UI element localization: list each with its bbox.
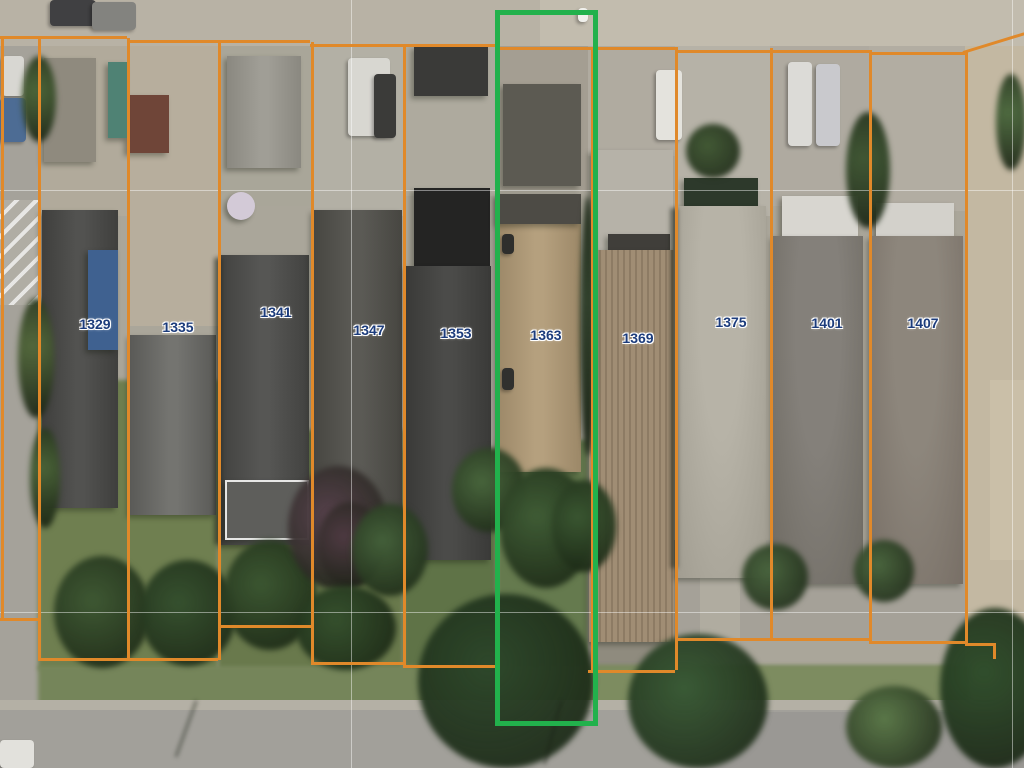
vehicle — [50, 0, 96, 26]
building-roof — [870, 236, 963, 584]
lot-label-1401: 1401 — [811, 315, 842, 331]
aerial-map[interactable]: 1329133513411347135313631369137514011407 — [0, 0, 1024, 768]
vehicle — [92, 2, 136, 30]
building-roof — [88, 250, 118, 350]
tree-canopy — [854, 540, 914, 602]
tree-canopy — [628, 634, 768, 768]
tree-canopy — [686, 124, 740, 178]
parcel-boundary-line — [965, 52, 968, 645]
lot-label-1335: 1335 — [162, 319, 193, 335]
tree-canopy — [846, 686, 942, 768]
highlighted-parcel-outline[interactable] — [495, 10, 598, 726]
parcel-boundary-line — [0, 36, 127, 39]
parcel-boundary-line — [311, 42, 314, 664]
parcel-boundary-line — [403, 665, 497, 668]
lot-label-1329: 1329 — [79, 316, 110, 332]
building-roof — [414, 46, 488, 96]
vehicle — [2, 56, 24, 96]
lot-label-1375: 1375 — [715, 314, 746, 330]
tree-canopy — [742, 544, 808, 610]
building-roof — [677, 206, 766, 578]
building-roof — [782, 196, 858, 238]
graticule-line — [1012, 0, 1013, 768]
vehicle — [656, 70, 682, 140]
parcel-boundary-line — [869, 50, 872, 642]
building-roof — [130, 335, 216, 515]
building-roof — [684, 178, 758, 208]
vehicle — [0, 740, 34, 768]
tree-canopy — [352, 504, 428, 596]
parcel-boundary-line — [127, 38, 130, 660]
building-roof — [227, 192, 255, 220]
parcel-boundary-line — [403, 44, 406, 667]
graticule-line — [351, 0, 352, 768]
tree-canopy — [846, 112, 890, 228]
building-roof — [773, 236, 863, 584]
lot-label-1369: 1369 — [622, 330, 653, 346]
parcel-boundary-line — [869, 52, 965, 55]
parcel-boundary-line — [38, 36, 41, 660]
parcel-boundary-line — [311, 662, 403, 665]
ground-patch — [128, 46, 218, 326]
tree-canopy — [18, 298, 54, 418]
parcel-boundary-line — [218, 625, 311, 628]
parcel-boundary-line — [675, 47, 678, 670]
building-roof — [227, 56, 301, 168]
tree-canopy — [996, 74, 1024, 170]
building-roof — [127, 95, 169, 153]
parcel-boundary-line — [770, 48, 773, 640]
parcel-boundary-line — [588, 670, 675, 673]
building-roof — [414, 188, 490, 266]
lot-label-1407: 1407 — [907, 315, 938, 331]
parcel-boundary-line — [993, 643, 996, 659]
ground-patch — [990, 380, 1024, 560]
vehicle — [816, 64, 840, 146]
vehicle — [374, 74, 396, 138]
lot-label-1363: 1363 — [530, 327, 561, 343]
parcel-boundary-line — [0, 618, 40, 621]
lot-label-1341: 1341 — [260, 304, 291, 320]
building-roof — [589, 250, 674, 642]
building-roof — [876, 203, 954, 239]
parcel-boundary-line — [965, 643, 995, 646]
lot-label-1347: 1347 — [353, 322, 384, 338]
parcel-boundary-line — [1, 36, 4, 620]
tree-canopy — [30, 428, 60, 528]
vehicle — [788, 62, 812, 146]
parcel-boundary-line — [869, 641, 965, 644]
building-roof — [108, 62, 128, 138]
parcel-boundary-line — [218, 40, 221, 660]
ground-patch — [0, 200, 38, 305]
tree-canopy — [140, 560, 236, 666]
lot-label-1353: 1353 — [440, 325, 471, 341]
ground-patch — [540, 0, 1024, 48]
